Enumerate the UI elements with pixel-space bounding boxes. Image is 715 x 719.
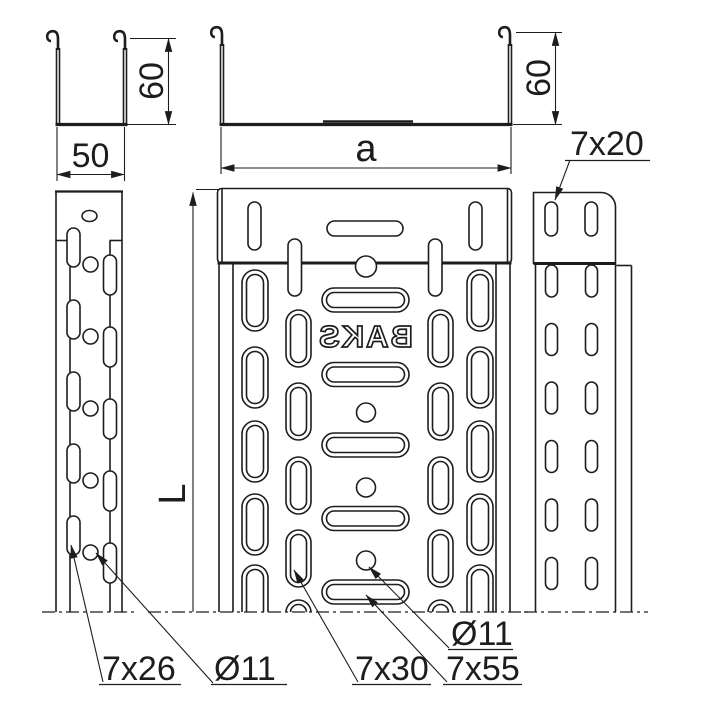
label-7x26: 7x26 bbox=[102, 650, 176, 688]
slot-7x20 bbox=[586, 382, 598, 414]
svg-text:BAKS: BAKS bbox=[317, 319, 413, 354]
label-7x30: 7x30 bbox=[355, 650, 429, 688]
coupler-slot bbox=[248, 202, 261, 250]
dim-width-large: a bbox=[355, 128, 377, 170]
dim-length: L bbox=[152, 483, 194, 504]
bottom-view: BAKS bbox=[148, 189, 528, 658]
slot-7x26 bbox=[67, 372, 80, 411]
rolled-edge-hook bbox=[499, 27, 510, 46]
dim-width-small: 50 bbox=[72, 137, 110, 175]
cross-section-small bbox=[47, 31, 176, 181]
coupler-slot bbox=[469, 202, 482, 250]
slot-7x20 bbox=[546, 499, 558, 531]
slot-7x20 bbox=[586, 558, 598, 590]
leader-7x26 bbox=[71, 545, 103, 682]
slot-7x20 bbox=[546, 382, 558, 414]
hole-d11 bbox=[356, 256, 377, 277]
rolled-edge-hook bbox=[47, 31, 58, 50]
technical-drawing-page: BAKS bbox=[0, 0, 715, 719]
brand-embossing: BAKS bbox=[317, 319, 413, 354]
hole-d11 bbox=[357, 403, 376, 422]
slot-7x26 bbox=[104, 399, 117, 439]
slot-7x26 bbox=[67, 516, 80, 555]
hole-d11 bbox=[357, 551, 376, 570]
crossing-slot bbox=[429, 239, 443, 296]
slot-7x26 bbox=[67, 444, 80, 483]
side-view-right bbox=[524, 193, 648, 613]
label-7x20: 7x20 bbox=[570, 125, 644, 163]
hole-d11 bbox=[357, 478, 376, 497]
hole-d11 bbox=[83, 473, 98, 488]
slot-7x20 bbox=[586, 324, 598, 356]
hole-d11 bbox=[83, 329, 98, 344]
label-7x55: 7x55 bbox=[446, 650, 520, 688]
slot-7x20 bbox=[546, 324, 558, 356]
slot-7x20 bbox=[546, 441, 558, 473]
slot-7x20 bbox=[586, 265, 598, 297]
coupler-slot-horizontal bbox=[327, 221, 403, 236]
slot-7x26 bbox=[67, 228, 80, 267]
dim-height-small: 60 bbox=[133, 62, 171, 100]
hole bbox=[82, 211, 97, 222]
hole-d11 bbox=[83, 257, 98, 272]
hole-d11 bbox=[83, 545, 98, 560]
slot-7x26 bbox=[104, 471, 117, 511]
slot-7x20 bbox=[586, 499, 598, 531]
leader-lines bbox=[71, 160, 570, 683]
dim-height-large: 60 bbox=[520, 59, 558, 97]
label-d11-bottom: Ø11 bbox=[451, 615, 513, 653]
label-d11-side: Ø11 bbox=[214, 650, 276, 688]
rolled-edge-hook bbox=[114, 31, 125, 50]
rolled-edge-hook bbox=[211, 27, 222, 46]
side-view-left bbox=[42, 191, 137, 612]
slot-7x20 bbox=[546, 265, 558, 297]
leader-7x20 bbox=[555, 160, 570, 200]
slot-7x26 bbox=[104, 327, 117, 367]
cross-section-large bbox=[211, 27, 562, 174]
hole-d11 bbox=[83, 401, 98, 416]
slot-7x20 bbox=[545, 202, 558, 236]
slot-7x26 bbox=[104, 255, 117, 295]
slot-7x20 bbox=[586, 441, 598, 473]
slot-7x20 bbox=[546, 558, 558, 590]
slot-7x26 bbox=[67, 300, 80, 339]
crossing-slot bbox=[288, 239, 302, 296]
slot-7x20 bbox=[585, 202, 598, 236]
drawing-svg: BAKS bbox=[0, 0, 715, 719]
